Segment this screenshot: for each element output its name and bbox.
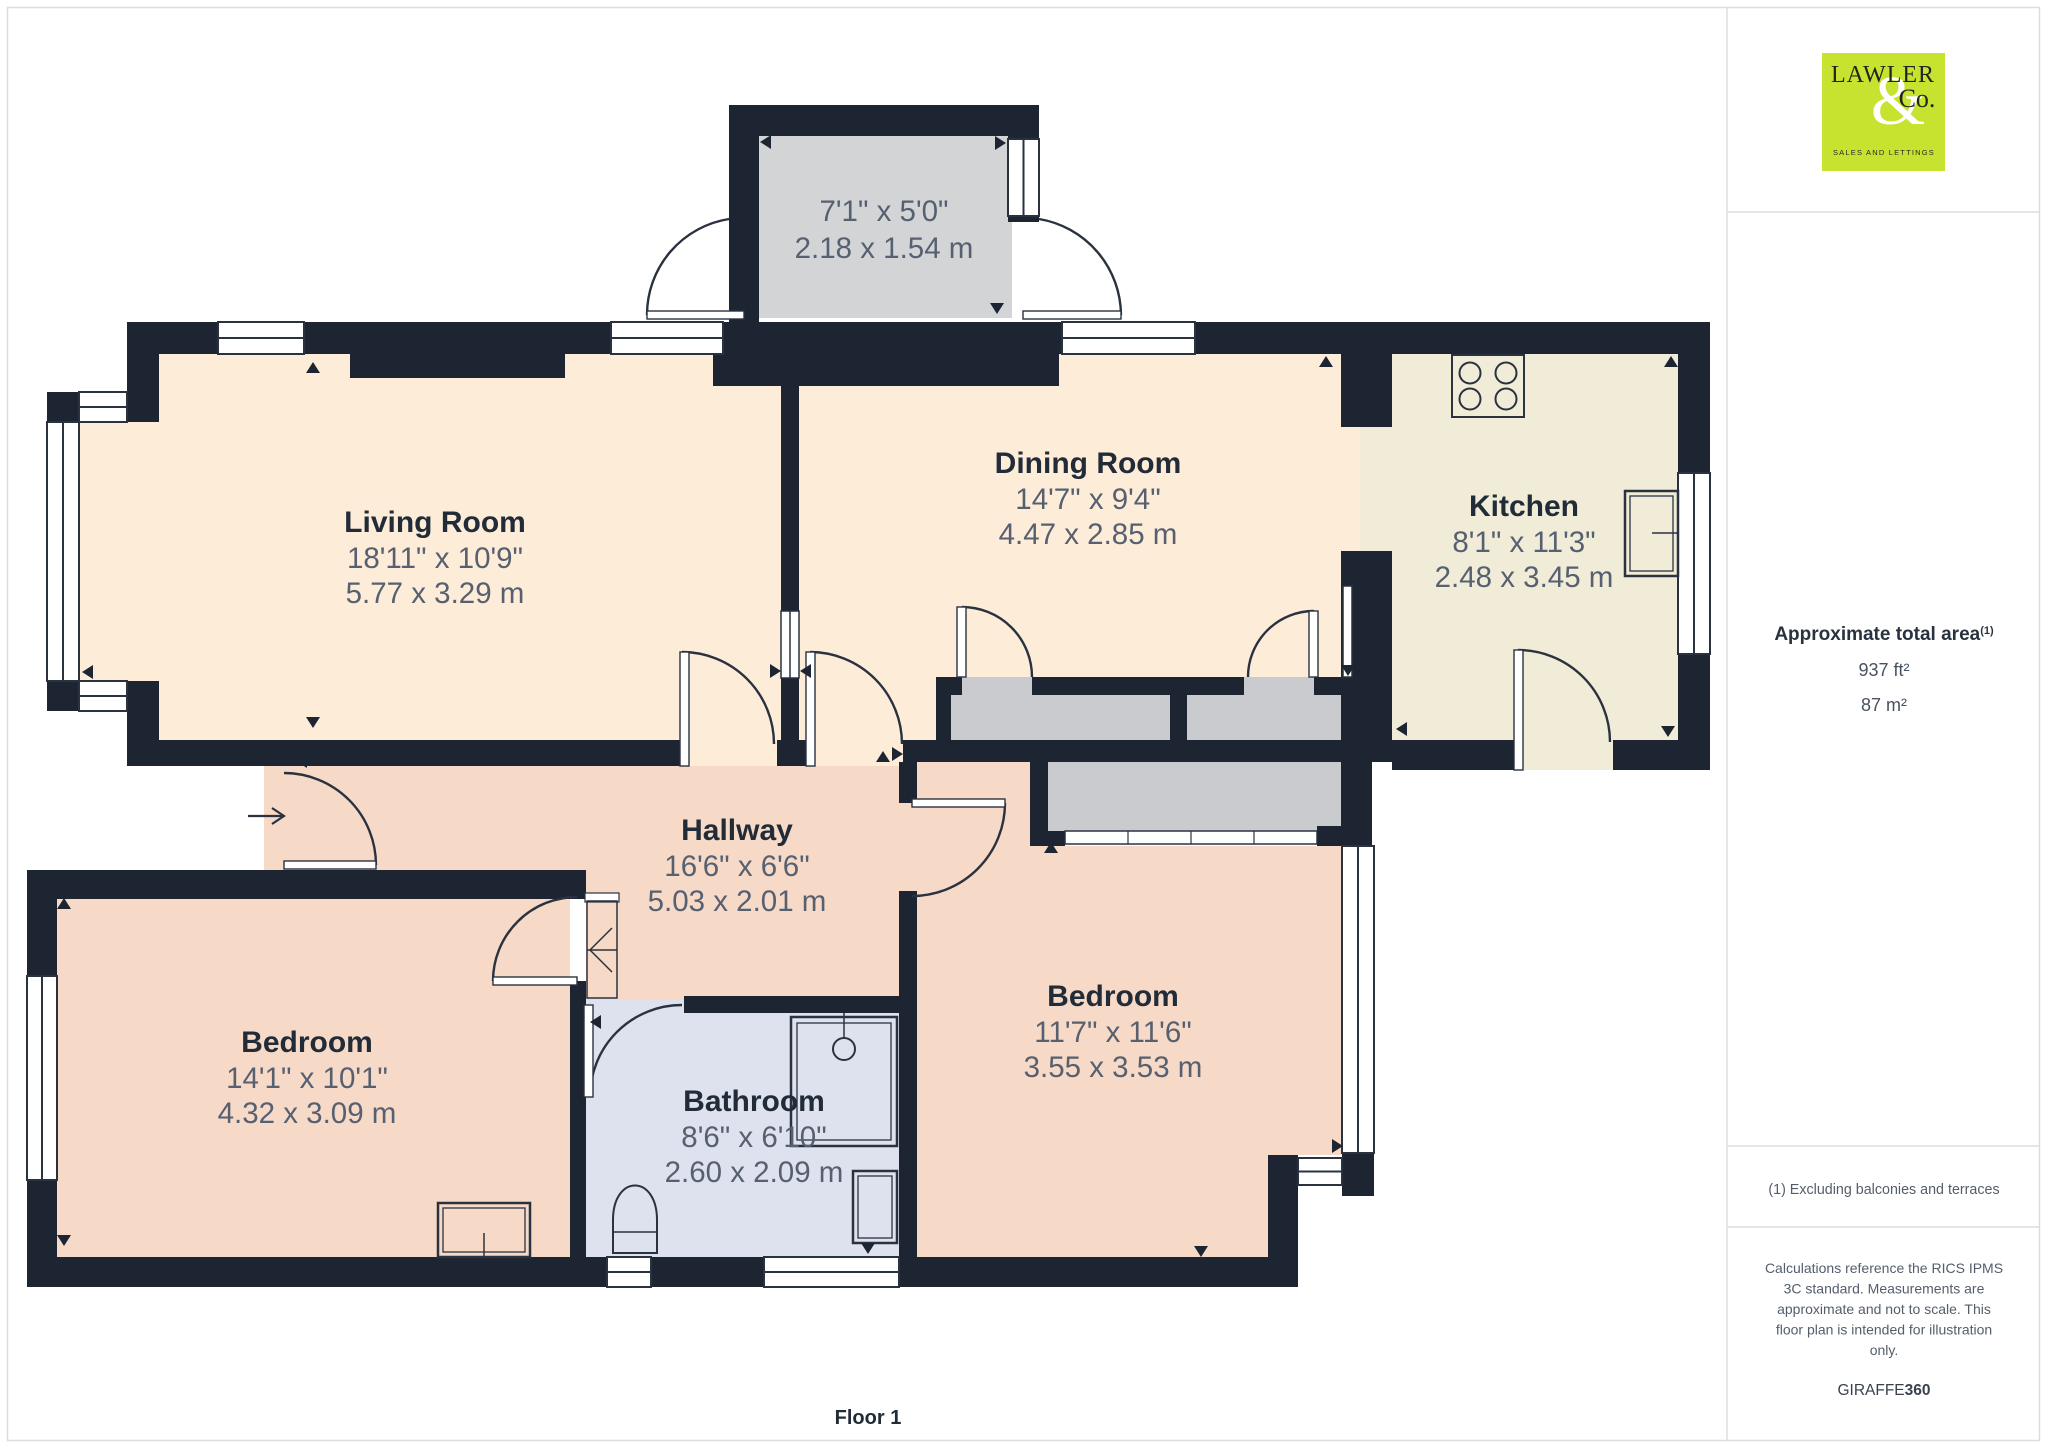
svg-text:11'7" x 11'6": 11'7" x 11'6"	[1034, 1016, 1191, 1049]
svg-text:4.47 x 2.85 m: 4.47 x 2.85 m	[999, 518, 1178, 551]
svg-text:5.03 x 2.01 m: 5.03 x 2.01 m	[648, 885, 827, 918]
svg-text:4.32 x 3.09 m: 4.32 x 3.09 m	[218, 1097, 397, 1130]
svg-text:3C standard. Measurements are: 3C standard. Measurements are	[1784, 1281, 1985, 1297]
svg-text:Bedroom: Bedroom	[1047, 980, 1179, 1013]
svg-text:8'6" x 6'10": 8'6" x 6'10"	[681, 1121, 826, 1154]
svg-text:5.77 x 3.29 m: 5.77 x 3.29 m	[346, 577, 525, 610]
svg-text:8'1" x 11'3": 8'1" x 11'3"	[1452, 526, 1595, 559]
svg-text:Dining Room: Dining Room	[995, 447, 1182, 480]
svg-text:3.55 x 3.53 m: 3.55 x 3.53 m	[1024, 1051, 1203, 1084]
svg-text:Hallway: Hallway	[681, 814, 793, 847]
svg-text:2.48 x 3.45 m: 2.48 x 3.45 m	[1435, 561, 1614, 594]
svg-text:937 ft²: 937 ft²	[1858, 660, 1909, 680]
svg-text:Bathroom: Bathroom	[683, 1085, 825, 1118]
svg-text:Calculations reference the RIC: Calculations reference the RICS IPMS	[1765, 1260, 2003, 1276]
svg-text:Approximate total area(1): Approximate total area(1)	[1774, 624, 1994, 645]
svg-text:87 m²: 87 m²	[1861, 695, 1907, 715]
svg-text:16'6" x 6'6": 16'6" x 6'6"	[664, 850, 809, 883]
svg-text:Co.: Co.	[1899, 84, 1936, 113]
svg-text:Bedroom: Bedroom	[241, 1026, 373, 1059]
svg-text:SALES AND LETTINGS: SALES AND LETTINGS	[1833, 148, 1935, 157]
svg-text:2.60 x 2.09 m: 2.60 x 2.09 m	[665, 1156, 844, 1189]
svg-text:18'11" x 10'9": 18'11" x 10'9"	[347, 542, 523, 575]
svg-text:7'1" x 5'0": 7'1" x 5'0"	[820, 195, 949, 228]
svg-text:14'1" x 10'1": 14'1" x 10'1"	[226, 1062, 388, 1095]
svg-text:floor plan is intended for ill: floor plan is intended for illustration	[1776, 1322, 1992, 1338]
svg-text:Kitchen: Kitchen	[1469, 490, 1579, 523]
svg-text:GIRAFFE360: GIRAFFE360	[1837, 1382, 1930, 1399]
svg-text:(1) Excluding balconies and te: (1) Excluding balconies and terraces	[1768, 1182, 1999, 1198]
svg-text:approximate and not to scale.: approximate and not to scale. This	[1777, 1301, 1991, 1317]
svg-text:Living Room: Living Room	[344, 506, 526, 539]
svg-text:only.: only.	[1870, 1342, 1899, 1358]
svg-text:14'7" x 9'4": 14'7" x 9'4"	[1015, 483, 1160, 516]
svg-text:Floor 1: Floor 1	[835, 1407, 902, 1429]
svg-text:2.18 x 1.54 m: 2.18 x 1.54 m	[795, 232, 974, 265]
